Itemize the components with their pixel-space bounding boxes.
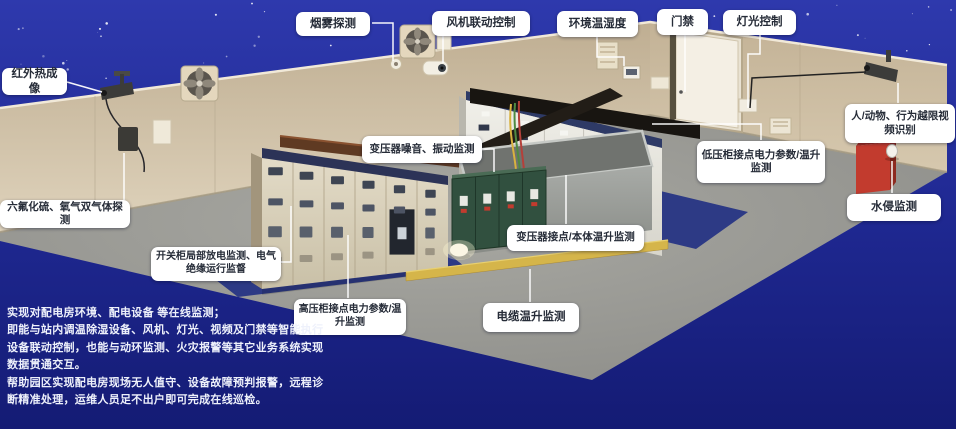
feature-description: 实现对配电房环境、配电设备 等在线监测； 即能与站内调温除湿设备、风机、灯光、视… xyxy=(7,305,323,409)
callout-video-recognition[interactable]: 人/动物、行为越限视频识别 xyxy=(845,104,955,143)
description-line: 断精准处理，运维人员足不出户即可完成在线巡检。 xyxy=(7,392,323,409)
callout-gas-detection[interactable]: 六氟化硫、氧气双气体探测 xyxy=(0,200,130,228)
exhaust-fan-icon xyxy=(400,25,435,58)
callout-light-control[interactable]: 灯光控制 xyxy=(723,10,796,35)
door xyxy=(670,28,742,132)
wall-box xyxy=(651,77,669,89)
callout-water-intrusion[interactable]: 水侵监测 xyxy=(847,194,941,221)
callout-infrared-thermal[interactable]: 红外热成像 xyxy=(2,68,67,95)
callout-cable-temp[interactable]: 电缆温升监测 xyxy=(483,303,579,332)
fire-extinguisher-box xyxy=(856,134,896,194)
door-handle xyxy=(679,90,683,94)
callout-env-temp-humidity[interactable]: 环境温湿度 xyxy=(557,11,638,37)
description-line: 帮助园区实现配电房现场无人值守、设备故障预判报警，远程诊 xyxy=(7,375,323,392)
description-line: 数据贯通交互。 xyxy=(7,357,323,374)
callout-transformer-contact[interactable]: 变压器接点/本体温升监测 xyxy=(507,225,644,251)
callout-partial-discharge[interactable]: 开关柜局部放电监测、电气绝缘运行监督 xyxy=(151,247,281,281)
callout-smoke-detection[interactable]: 烟雾探测 xyxy=(296,12,370,36)
dome-camera-icon xyxy=(423,61,448,75)
callout-door-access[interactable]: 门禁 xyxy=(657,9,708,35)
wall-panel xyxy=(153,120,171,144)
callout-lv-cabinet[interactable]: 低压柜接点电力参数/温升监测 xyxy=(697,141,825,183)
distribution-room-monitoring-scene: 烟雾探测 风机联动控制 环境温湿度 门禁 灯光控制 红外热成像 六氟化硫、氧气双… xyxy=(0,0,956,429)
callout-fan-control[interactable]: 风机联动控制 xyxy=(432,11,530,36)
wall-box xyxy=(437,34,451,50)
exhaust-fan-icon xyxy=(181,66,218,101)
access-control-panel xyxy=(770,118,791,134)
callout-transformer-noise[interactable]: 变压器噪音、振动监测 xyxy=(362,136,482,163)
description-line: 实现对配电房环境、配电设备 等在线监测； xyxy=(7,305,323,322)
water-sensor-dome xyxy=(887,145,898,158)
description-line: 设备联动控制，也能与动环监测、火灾报警等其它业务系统实现 xyxy=(7,340,323,357)
gas-detector-icon xyxy=(118,127,138,151)
description-line: 即能与站内调温除湿设备、风机、灯光、视频及门禁等智能执行 xyxy=(7,322,323,339)
floor-light xyxy=(450,244,468,257)
